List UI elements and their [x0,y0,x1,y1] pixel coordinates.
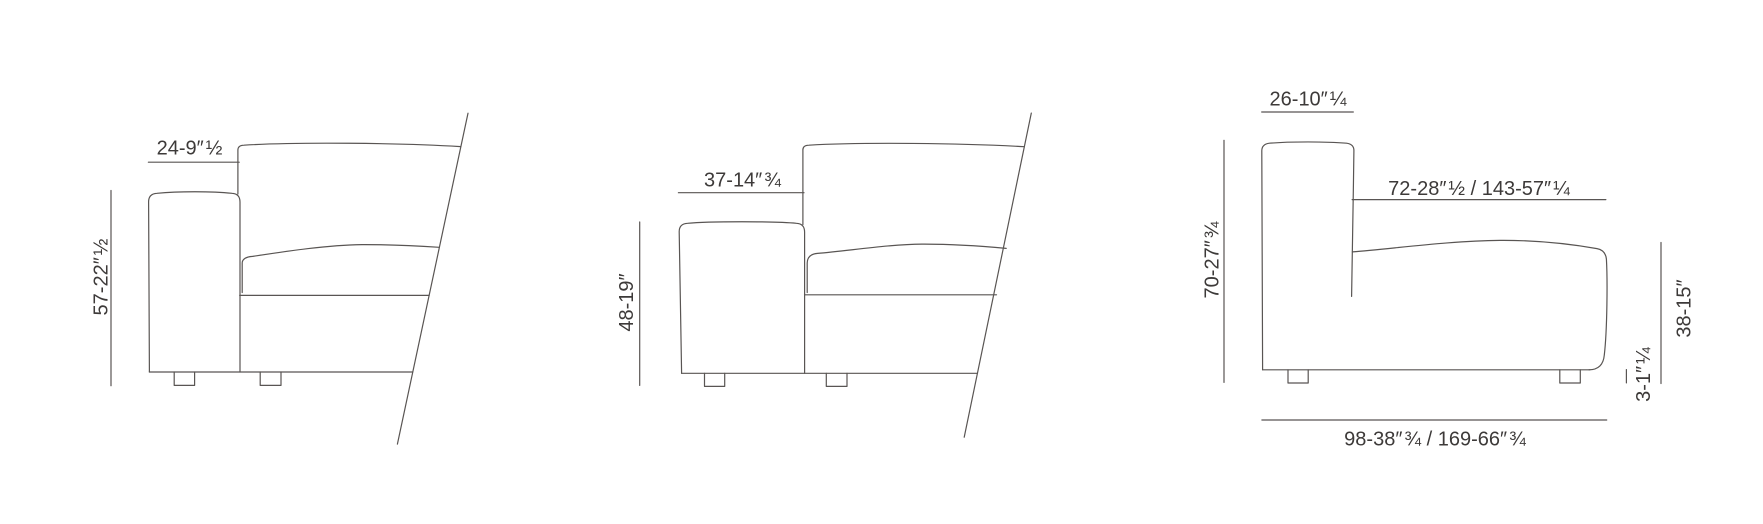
svg-text:38-15″: 38-15″ [1674,279,1696,337]
svg-text:3-1″¼: 3-1″¼ [1633,347,1655,402]
svg-text:70-27″¾: 70-27″¾ [1202,221,1224,298]
svg-text:57-22″½: 57-22″½ [91,238,113,315]
svg-text:37-14″¾: 37-14″¾ [704,170,781,192]
svg-text:98-38″¾ / 169-66″¾: 98-38″¾ / 169-66″¾ [1344,429,1526,451]
svg-text:24-9″½: 24-9″½ [157,138,223,160]
svg-text:72-28″½ / 143-57″¼: 72-28″½ / 143-57″¼ [1388,178,1570,200]
svg-text:26-10″¼: 26-10″¼ [1270,89,1347,111]
svg-text:48-19″: 48-19″ [616,273,638,331]
